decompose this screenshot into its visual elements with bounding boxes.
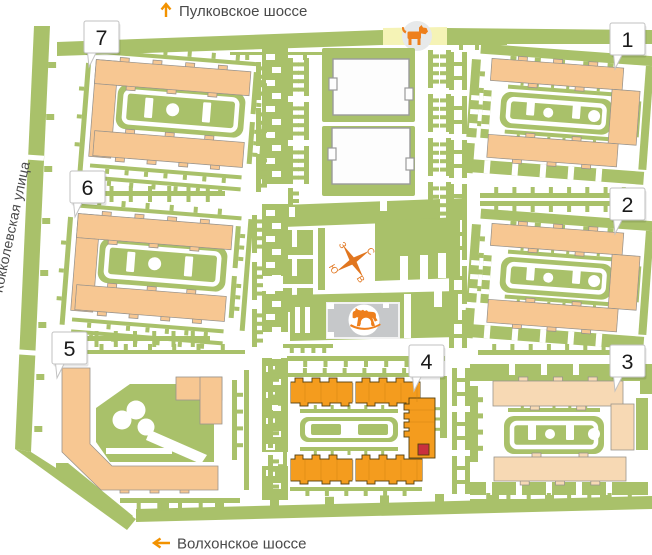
svg-text:7: 7 bbox=[96, 26, 108, 50]
svg-text:5: 5 bbox=[64, 337, 76, 361]
svg-text:2: 2 bbox=[622, 193, 634, 217]
svg-text:Волхонское шоссе: Волхонское шоссе bbox=[177, 536, 307, 553]
svg-text:4: 4 bbox=[421, 350, 433, 374]
svg-text:6: 6 bbox=[82, 176, 94, 200]
svg-text:3: 3 bbox=[622, 350, 634, 374]
svg-text:Пулковское шоссе: Пулковское шоссе bbox=[179, 3, 307, 20]
svg-text:1: 1 bbox=[622, 28, 634, 52]
